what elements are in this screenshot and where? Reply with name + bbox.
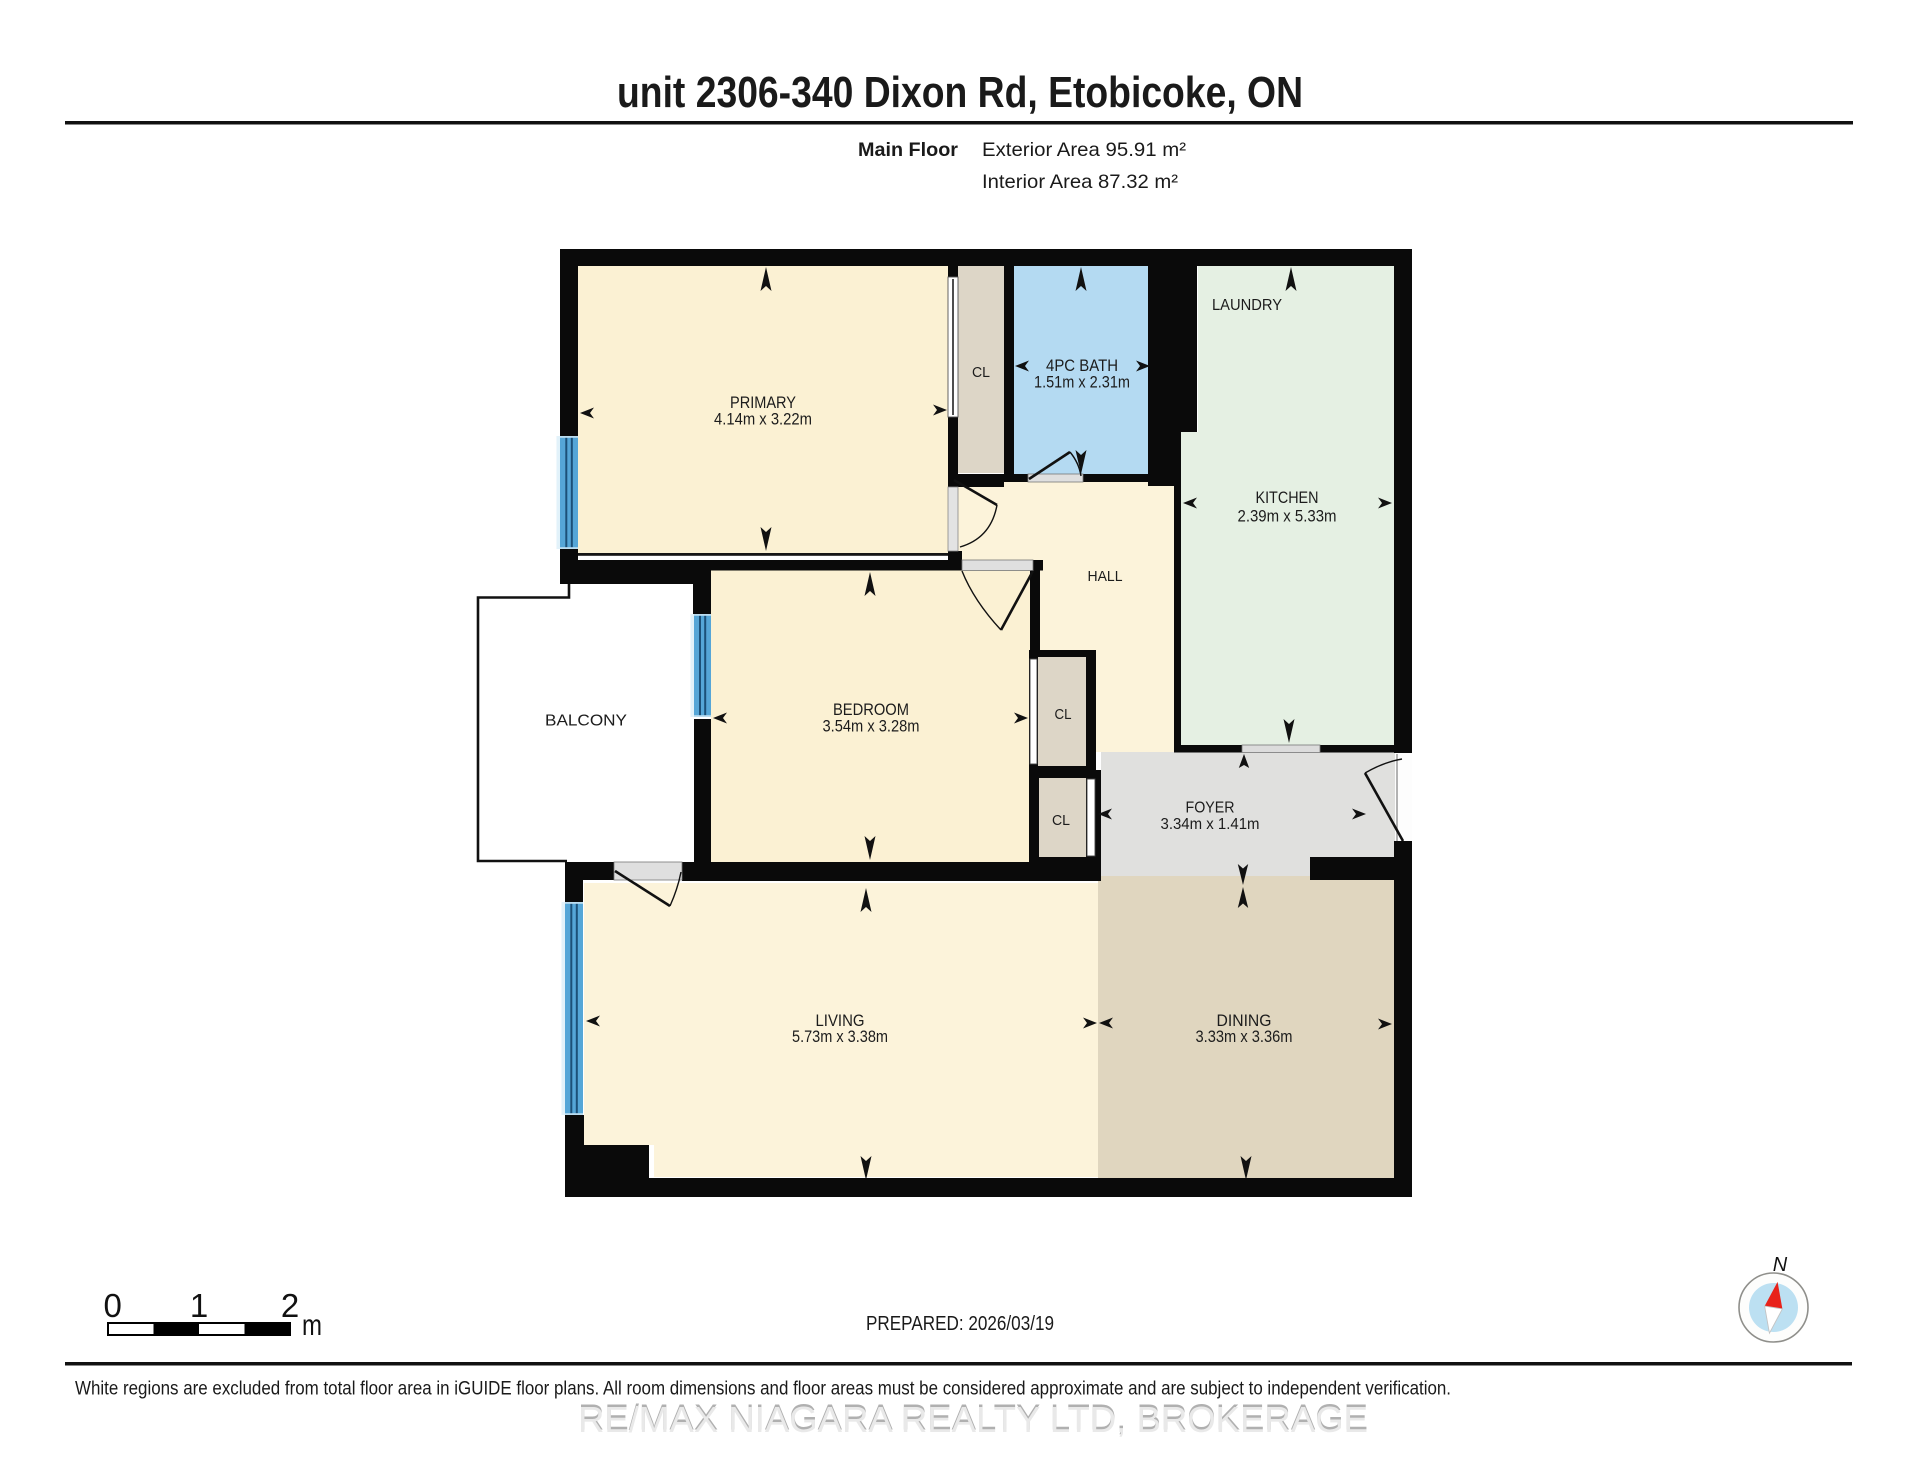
svg-text:5.73m x 3.38m: 5.73m x 3.38m — [792, 1028, 888, 1046]
svg-text:2.39m x 5.33m: 2.39m x 5.33m — [1238, 508, 1337, 526]
svg-text:BEDROOM: BEDROOM — [833, 701, 909, 719]
svg-text:3.54m x 3.28m: 3.54m x 3.28m — [823, 718, 920, 736]
svg-text:3.34m x 1.41m: 3.34m x 1.41m — [1161, 816, 1260, 833]
svg-text:4.14m x 3.22m: 4.14m x 3.22m — [714, 411, 812, 429]
svg-text:1: 1 — [190, 1287, 208, 1324]
svg-text:2: 2 — [281, 1287, 299, 1324]
svg-text:Exterior Area 95.91 m²: Exterior Area 95.91 m² — [982, 139, 1187, 161]
svg-text:HALL: HALL — [1088, 568, 1123, 585]
svg-text:unit 2306-340 Dixon Rd, Etobic: unit 2306-340 Dixon Rd, Etobicoke, ON — [617, 68, 1303, 117]
svg-text:Main Floor: Main Floor — [858, 139, 958, 161]
svg-text:m: m — [302, 1309, 322, 1342]
svg-text:BALCONY: BALCONY — [545, 713, 627, 730]
svg-text:PREPARED: 2026/03/19: PREPARED: 2026/03/19 — [866, 1312, 1054, 1335]
svg-text:CL: CL — [972, 365, 990, 381]
svg-text:0: 0 — [104, 1287, 122, 1324]
svg-text:LAUNDRY: LAUNDRY — [1212, 297, 1282, 314]
svg-text:Interior Area 87.32 m²: Interior Area 87.32 m² — [982, 171, 1179, 193]
svg-text:N: N — [1773, 1254, 1788, 1276]
svg-text:CL: CL — [1052, 813, 1070, 829]
svg-text:KITCHEN: KITCHEN — [1256, 489, 1319, 507]
svg-text:1.51m x 2.31m: 1.51m x 2.31m — [1034, 373, 1130, 392]
svg-text:3.33m x 3.36m: 3.33m x 3.36m — [1196, 1028, 1293, 1046]
svg-text:CL: CL — [1055, 707, 1072, 723]
svg-text:PRIMARY: PRIMARY — [730, 394, 796, 412]
svg-text:FOYER: FOYER — [1186, 800, 1235, 817]
svg-text:RE/MAX NIAGARA REALTY LTD, BRO: RE/MAX NIAGARA REALTY LTD, BROKERAGE — [578, 1399, 1368, 1440]
